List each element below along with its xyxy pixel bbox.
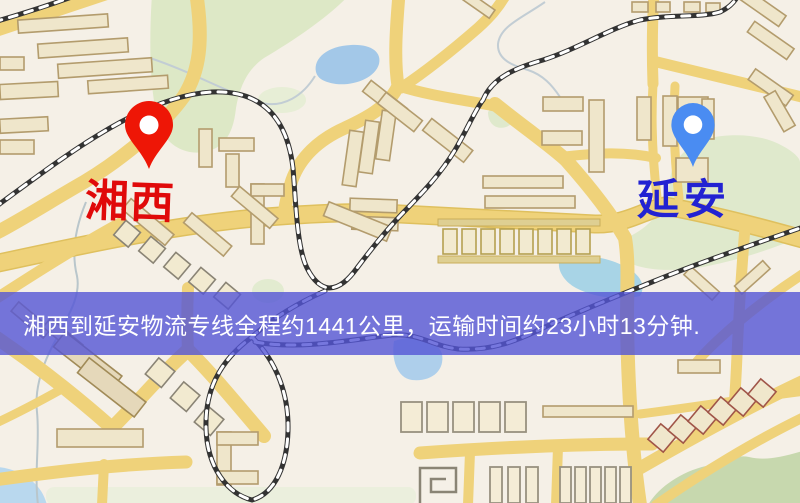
origin-pin-shape (125, 101, 173, 169)
destination-city-label: 延安 (637, 179, 731, 221)
destination-pin-icon[interactable] (669, 101, 717, 169)
route-info-banner: 湘西到延安物流专线全程约1441公里，运输时间约23小时13分钟. (0, 292, 800, 355)
origin-pin-hole (140, 116, 159, 135)
destination-pin-shape (671, 103, 714, 167)
comb-building (438, 219, 600, 263)
map[interactable]: 湘西 延安 湘西到延安物流专线全程约1441公里，运输时间约23小时13分钟. (0, 0, 800, 503)
destination-pin-hole (684, 115, 703, 134)
route-info-text: 湘西到延安物流专线全程约1441公里，运输时间约23小时13分钟. (0, 307, 700, 341)
origin-pin-icon[interactable] (121, 99, 177, 171)
map-canvas (0, 0, 800, 503)
origin-city-label: 湘西 (84, 179, 175, 226)
